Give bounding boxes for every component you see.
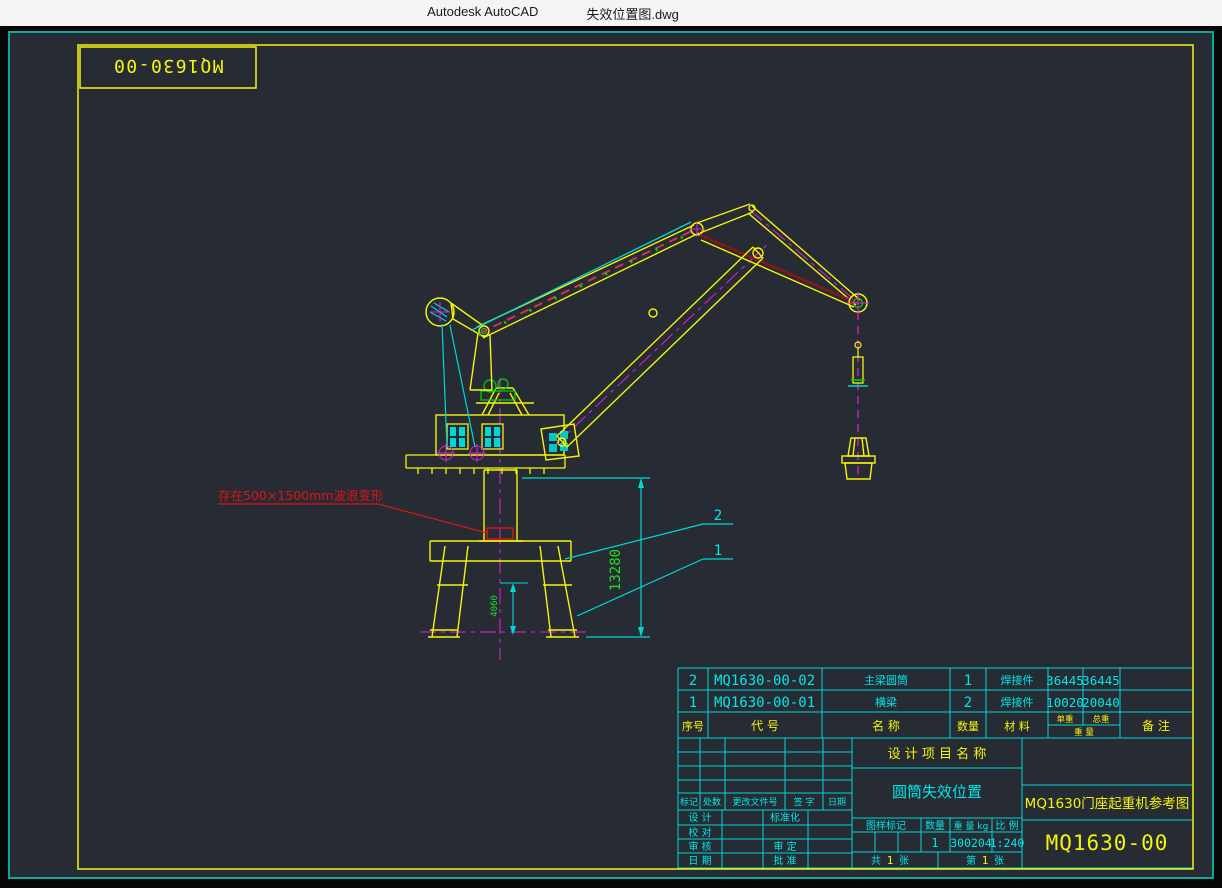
role-design: 设 计 (688, 811, 711, 824)
role-review: 审 核 (688, 840, 711, 853)
drawing-number: MQ1630-00 (1046, 831, 1169, 855)
bom-cell-material: 焊接件 (1001, 673, 1034, 687)
corner-label: MQ1630-00 (112, 55, 223, 76)
role-date: 日 期 (688, 855, 711, 867)
rev-changedoc-label: 更改文件号 (732, 796, 777, 808)
bom-header-code: 代 号 (751, 719, 779, 733)
bom-cell-unit-weight: 10020 (1046, 695, 1084, 710)
role-approve-check: 审 定 (773, 840, 796, 853)
role-approve: 批 准 (773, 854, 796, 867)
bom-header-material: 材 料 (1004, 719, 1030, 733)
autocad-window: Autodesk AutoCAD 失效位置图.dwg (0, 0, 1222, 888)
bom-cell-name: 横梁 (875, 695, 897, 709)
spec-qty-value: 1 (931, 836, 938, 850)
rev-count-label: 处数 (703, 796, 721, 808)
bom-header-unit-weight: 单重 (1056, 714, 1074, 725)
bom-header-name: 名 称 (872, 718, 900, 733)
bom-cell-seq: 2 (689, 673, 697, 689)
bom-cell-total-weight: 20040 (1082, 695, 1120, 710)
role-check: 校 对 (688, 826, 711, 839)
bom-header-total-weight: 总重 (1092, 714, 1110, 725)
spec-qty-label: 数量 (925, 819, 945, 832)
rev-date-label: 日期 (828, 797, 846, 808)
bom-cell-seq: 1 (689, 695, 697, 711)
dim-text-4060: 4060 (490, 595, 500, 617)
bom-header-remark: 备 注 (1142, 718, 1170, 733)
bom-cell-total-weight: 36445 (1082, 673, 1120, 688)
project-name-label: 设 计 项 目 名 称 (888, 746, 987, 762)
sheets-total-num: 1 (887, 854, 894, 867)
reference-title: MQ1630门座起重机参考图 (1025, 795, 1190, 812)
bom-cell-name: 主梁圆筒 (864, 673, 908, 687)
drawing-title: 圆筒失效位置 (892, 783, 982, 801)
bom-header-seq: 序号 (682, 719, 704, 733)
bom-header-qty: 数量 (957, 720, 979, 733)
callout-1-label: 1 (714, 543, 722, 559)
bom-header-weight: 重 量 (1074, 727, 1094, 738)
bom-cell-qty: 2 (964, 695, 972, 711)
bom-cell-code: MQ1630-00-02 (714, 673, 815, 689)
model-space-background (9, 32, 1213, 878)
sheets-page-num: 1 (982, 854, 989, 867)
bom-cell-material: 焊接件 (1001, 695, 1034, 709)
dim-text-13280: 13280 (608, 549, 624, 591)
sheets-total-suffix: 张 (899, 855, 909, 867)
callout-2-label: 2 (714, 508, 722, 524)
bom-cell-code: MQ1630-00-01 (714, 695, 815, 711)
spec-weight-value: 300204 (950, 836, 992, 850)
spec-scale-label: 比 例 (995, 819, 1018, 832)
drawing-canvas[interactable]: MQ1630-00 (0, 0, 1222, 888)
spec-mark-label: 图样标记 (866, 819, 906, 832)
rev-mark-label: 标记 (680, 796, 698, 808)
sheets-total-prefix: 共 (871, 855, 881, 867)
sheets-page-prefix: 第 (966, 854, 976, 867)
failure-note-text: 存在500×1500mm波浪变形 (218, 488, 384, 503)
rev-sign-label: 签 字 (794, 796, 815, 808)
spec-scale-value: 1:240 (990, 836, 1025, 850)
spec-weight-label: 重 量 kg (954, 820, 989, 832)
sheets-page-suffix: 张 (994, 855, 1004, 867)
bom-cell-qty: 1 (964, 673, 972, 689)
bom-cell-unit-weight: 36445 (1046, 673, 1084, 688)
role-standard: 标准化 (770, 811, 800, 824)
